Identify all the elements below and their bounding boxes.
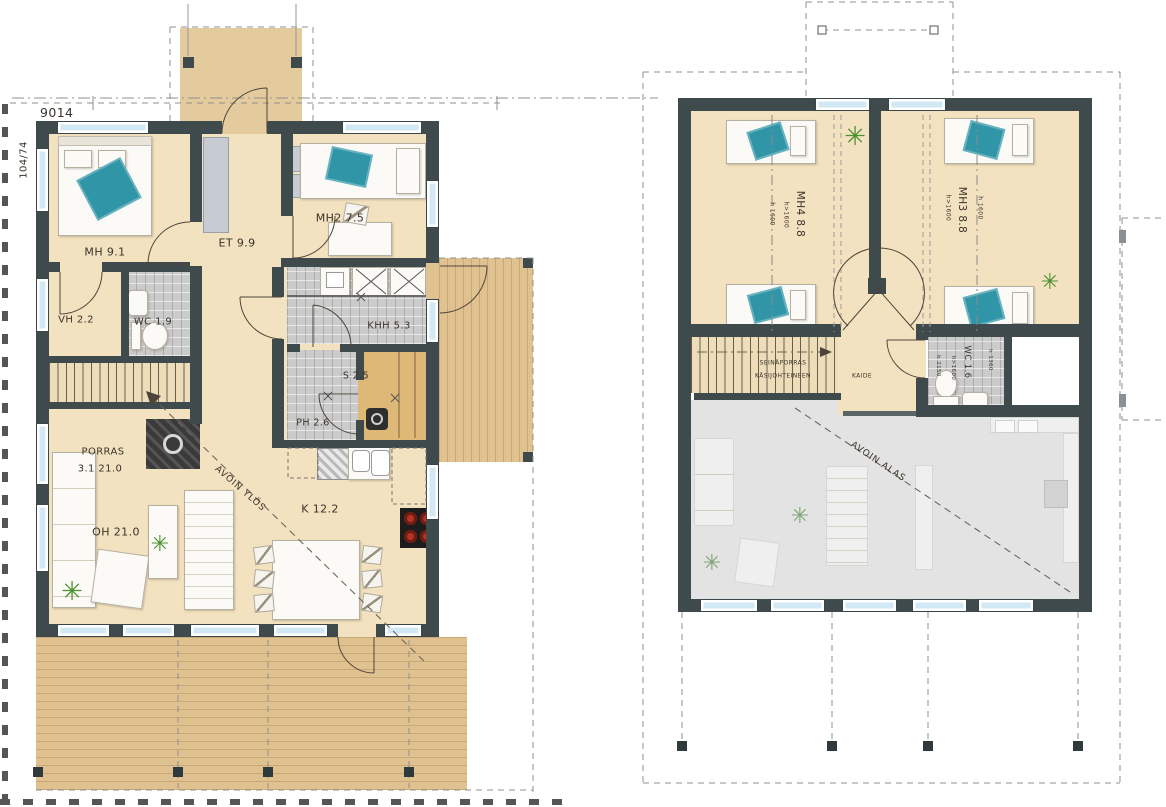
room-label-vh: VH 2.2 bbox=[58, 315, 94, 326]
room-label-wc2: WC 1.6 bbox=[962, 346, 972, 379]
room-label-mh2: MH2 7.5 bbox=[316, 212, 365, 225]
height-label: h>1600 bbox=[783, 202, 790, 229]
height-label: h 1600 bbox=[977, 196, 984, 219]
room-label-wc1: WC 1.9 bbox=[134, 317, 172, 328]
cabinet-dashes bbox=[288, 448, 426, 504]
room-label-sauna: S 2.5 bbox=[343, 371, 369, 382]
room-label-porras: PORRAS bbox=[82, 447, 125, 458]
height-label: h 1600 bbox=[769, 202, 776, 225]
deck-posts bbox=[33, 741, 1083, 777]
room-label-k: K 12.2 bbox=[301, 503, 339, 516]
height-label: h 2150 bbox=[935, 355, 941, 377]
dimension-label: 9014 bbox=[40, 105, 73, 120]
room-label-porras-area: 3.1 21.0 bbox=[78, 464, 123, 475]
door-swings bbox=[60, 88, 925, 673]
overhang-dashes bbox=[10, 2, 1166, 797]
porch-supports bbox=[188, 4, 296, 56]
room-label-ph: PH 2.6 bbox=[296, 418, 329, 429]
room-label-et: ET 9.9 bbox=[218, 237, 255, 250]
stair-direction bbox=[152, 352, 1070, 662]
sheet-ref-label: 104/74 bbox=[19, 141, 30, 179]
stair-note-line1: SEINÄPORRAS bbox=[760, 360, 807, 367]
height-label: h>1600 bbox=[945, 195, 952, 222]
arrowheads bbox=[146, 347, 832, 406]
room-label-oh: OH 21.0 bbox=[92, 526, 140, 539]
room-label-mh4: MH4 8.8 bbox=[794, 191, 806, 237]
stair-note-line2: KÄSIJOHTEINEEN bbox=[755, 373, 811, 380]
plan-linework bbox=[0, 0, 1166, 807]
height-label: h 1360 bbox=[987, 349, 993, 371]
appliance-marks bbox=[324, 269, 424, 402]
room-label-mh3: MH3 8.8 bbox=[956, 187, 968, 233]
annotation-kaide: KAIDE bbox=[852, 373, 872, 380]
floor-plan-sheet: ✳ ✳ bbox=[0, 0, 1166, 807]
room-label-mh1: MH 9.1 bbox=[84, 246, 125, 259]
height-label: h>1600 bbox=[950, 356, 956, 381]
room-label-khh: KHH 5.3 bbox=[367, 321, 410, 332]
